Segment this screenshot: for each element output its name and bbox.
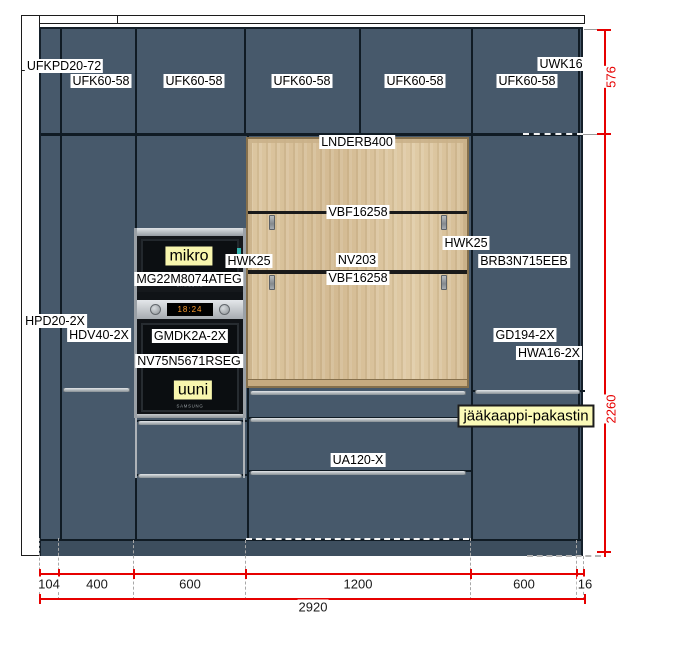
middle-drawer-handle-1[interactable] (250, 391, 466, 395)
dimension-segment-value: 1200 (343, 577, 374, 592)
dimension-value-2260: 2260 (604, 395, 619, 424)
upper-door-1[interactable] (40, 28, 58, 131)
dimension-total-value: 2920 (298, 600, 329, 615)
dimension-tick (133, 569, 135, 579)
highlight-label[interactable]: jääkaappi-pakastin (457, 405, 594, 428)
dimension-segment-value: 600 (512, 577, 536, 592)
middle-drawer-handle-3[interactable] (250, 471, 466, 475)
dashed-reference-plinth (246, 538, 469, 540)
product-code-label[interactable]: HWA16-2X (516, 346, 582, 360)
dimension-segment-value: 16 (577, 577, 593, 592)
oven-col-drawer-handle-2[interactable] (138, 474, 242, 478)
dimension-segment-value: 400 (85, 577, 109, 592)
handle-clip-1[interactable] (269, 215, 275, 230)
oven-bottom-trim (137, 414, 243, 418)
tall-door-handle[interactable] (63, 388, 130, 392)
product-code-label[interactable]: MG22M8074ATEG (134, 272, 243, 286)
dimension-segment-value: 600 (178, 577, 202, 592)
dimension-tick (470, 569, 472, 579)
oven-control-panel[interactable]: 18:24 (137, 300, 243, 319)
dimension-tick (597, 551, 611, 553)
dimension-line-vertical (604, 29, 606, 557)
middle-drawer-handle-2[interactable] (250, 418, 466, 422)
kitchen-elevation-drawing: SAMSUNG 18:24 SAMSUNG 576 2260 (0, 0, 673, 658)
product-code-label[interactable]: UFK60-58 (272, 74, 333, 88)
product-code-label[interactable]: NV75N5671RSEG (135, 354, 243, 368)
plinth-board[interactable] (41, 541, 581, 556)
product-code-label[interactable]: UA120-X (331, 453, 386, 467)
dashed-reference-top-right (523, 133, 583, 135)
dimension-segment-value: 104 (37, 577, 61, 592)
dimension-line-bottom (39, 573, 584, 575)
product-code-label[interactable]: LNDERB400 (319, 135, 395, 149)
soffit-divider (117, 15, 118, 24)
fridge-handle[interactable] (475, 390, 580, 394)
product-code-label[interactable]: HPD20-2X (23, 314, 87, 328)
product-code-label[interactable]: HWK25 (442, 236, 489, 250)
middle-drawer-3[interactable] (246, 469, 469, 537)
product-code-label[interactable]: UFK60-58 (71, 74, 132, 88)
product-code-label[interactable]: HWK25 (225, 254, 272, 268)
oven-display: 18:24 (167, 303, 213, 316)
oven-knob-left[interactable] (150, 304, 161, 315)
product-code-label[interactable]: BRB3N715EEB (478, 254, 570, 268)
handle-clip-2[interactable] (441, 215, 447, 230)
product-code-label[interactable]: UFK60-58 (385, 74, 446, 88)
highlight-label[interactable]: uuni (174, 381, 212, 400)
product-code-label[interactable]: VBF16258 (326, 271, 389, 285)
product-code-label[interactable]: HDV40-2X (67, 328, 131, 342)
product-code-label[interactable]: UWK16 (537, 57, 584, 71)
oven-col-drawer-handle-1[interactable] (138, 421, 242, 425)
dimension-tick (597, 29, 611, 31)
product-code-label[interactable]: UFK60-58 (164, 74, 225, 88)
dashed-reference-bottom-right (527, 555, 601, 557)
appliance-side-trim-left (135, 418, 137, 478)
handle-clip-3[interactable] (269, 275, 275, 290)
handle-clip-4[interactable] (441, 275, 447, 290)
product-code-label[interactable]: VBF16258 (326, 205, 389, 219)
highlight-label[interactable]: mikro (165, 247, 212, 266)
dimension-tick (584, 594, 586, 604)
product-code-label[interactable]: NV203 (336, 253, 378, 267)
dimension-value-576: 576 (604, 66, 619, 88)
soffit-panel (21, 15, 585, 24)
dimension-tick (597, 133, 611, 135)
dimension-tick (39, 594, 41, 604)
wood-bottom-rail (248, 379, 467, 386)
left-filler-panel (21, 15, 40, 556)
appliance-side-trim-right (243, 418, 245, 478)
oven-knob-right[interactable] (219, 304, 230, 315)
dimension-tick (245, 569, 247, 579)
product-code-label[interactable]: UFKPD20-72 (25, 59, 103, 73)
product-code-label[interactable]: GD194-2X (493, 328, 556, 342)
product-code-label[interactable]: UFK60-58 (497, 74, 558, 88)
microwave-frame (137, 228, 243, 236)
oven-brand-text: SAMSUNG (152, 405, 228, 409)
product-code-label[interactable]: GMDK2A-2X (152, 329, 228, 343)
divider-16 (578, 29, 580, 540)
